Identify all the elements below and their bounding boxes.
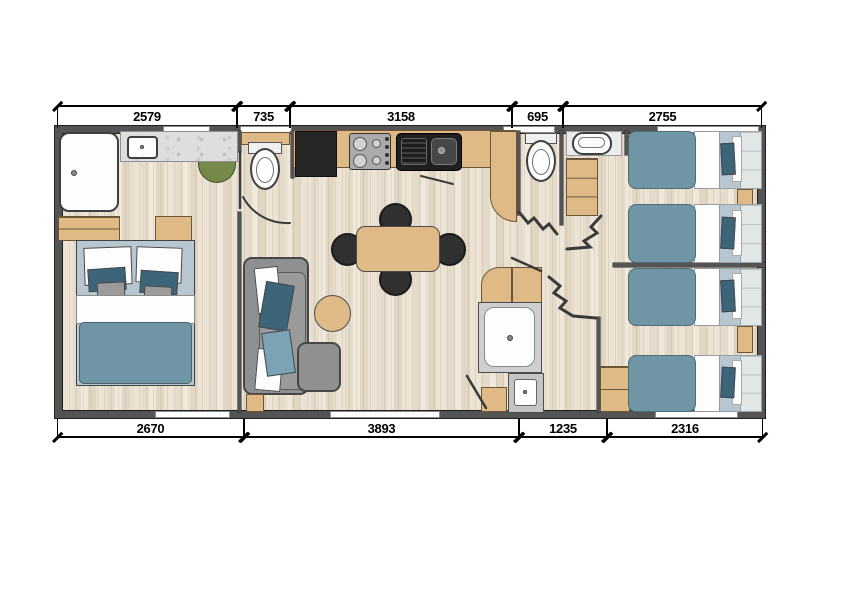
washroom-cabinet — [566, 158, 598, 216]
dim-label: 695 — [527, 109, 548, 124]
bed-duvet — [79, 322, 192, 384]
dim-top-5: 2755 — [563, 105, 762, 128]
bed-duvet — [628, 355, 696, 412]
stove-knob — [385, 145, 389, 149]
nightstand-right — [155, 216, 192, 241]
bed-sheet — [694, 131, 720, 189]
burner — [353, 154, 367, 168]
washbasin-drain — [523, 390, 527, 394]
dim-bottom-1: 2670 — [57, 419, 244, 438]
vanity-sink — [127, 136, 158, 159]
bed-nightstand — [737, 326, 753, 353]
toilet — [250, 148, 280, 190]
dim-label: 735 — [253, 109, 274, 124]
peninsula-counter — [490, 131, 517, 222]
dim-label: 3158 — [387, 109, 415, 124]
bathtub-drain — [71, 170, 77, 176]
bed-pillow-navy — [720, 280, 736, 313]
sink-faucet — [438, 147, 445, 154]
bed-duvet — [628, 131, 696, 189]
sofa-pillow-blue — [261, 329, 296, 377]
bed-duvet — [628, 204, 696, 263]
burner — [353, 137, 367, 151]
bed-pillow-navy — [720, 367, 736, 399]
basin-inner — [578, 137, 605, 148]
sink-basin — [431, 138, 457, 165]
toilet-bowl — [256, 157, 274, 183]
dim-label: 3893 — [368, 423, 396, 435]
wall-wc2-right — [560, 131, 563, 225]
shower-cabinet-bottom — [481, 387, 507, 412]
bed-headboard — [740, 204, 762, 263]
wall-bedrooms-divider — [613, 263, 765, 267]
floor-plan-page: 2579 735 3158 695 2755 2670 3893 1235 23… — [0, 0, 843, 596]
nightstand-left — [58, 216, 120, 241]
bed-pillow-navy — [720, 143, 736, 176]
dim-label: 1235 — [549, 423, 577, 435]
dim-bottom-2: 3893 — [244, 419, 519, 438]
coffee-table — [314, 295, 351, 332]
dim-label: 2316 — [671, 423, 699, 435]
dim-label: 2755 — [649, 109, 677, 124]
sofa-ottoman — [297, 342, 341, 392]
stove-knob — [385, 161, 389, 165]
bed-sheet — [76, 295, 195, 324]
shower — [478, 302, 542, 373]
dim-top-1: 2579 — [57, 105, 237, 128]
stove-knob — [385, 153, 389, 157]
bed-sheet — [694, 204, 720, 263]
bed-headboard — [740, 131, 762, 189]
toilet-bowl — [532, 149, 550, 175]
dim-bottom-3: 1235 — [519, 419, 607, 438]
cabinet-divider — [511, 268, 513, 302]
single-bed — [628, 204, 762, 263]
dining-table — [356, 226, 440, 272]
burner — [372, 139, 381, 148]
dim-top-4: 695 — [512, 105, 563, 128]
kitchen-sink — [396, 133, 462, 171]
dim-label: 2670 — [137, 423, 165, 435]
bed-headboard — [740, 355, 762, 412]
single-bed — [628, 131, 762, 189]
shower-tray — [484, 307, 535, 367]
hallway-cabinet — [600, 366, 630, 412]
washroom-basin — [572, 132, 612, 155]
sink-drain — [140, 145, 144, 149]
window — [330, 411, 440, 418]
toilet — [526, 140, 556, 182]
wall-bedroom-living — [238, 212, 241, 412]
dim-top-3: 3158 — [290, 105, 512, 128]
bathtub — [59, 132, 119, 212]
burner — [372, 156, 381, 165]
sofa-side-post — [246, 394, 264, 412]
single-bed — [628, 355, 762, 412]
bed-pillow-navy — [720, 217, 736, 250]
bed-duvet — [628, 268, 696, 326]
stove — [349, 133, 391, 170]
bed-headboard — [740, 268, 762, 326]
dim-label: 2579 — [133, 109, 161, 124]
wall-wc2-left — [517, 131, 520, 215]
dim-top-2: 735 — [237, 105, 290, 128]
washbasin — [514, 379, 537, 406]
shower-cabinet-top — [481, 267, 542, 303]
shower-drain — [507, 335, 513, 341]
window — [655, 411, 738, 418]
bed-sheet — [694, 268, 720, 326]
dim-bottom-4: 2316 — [607, 419, 763, 438]
sink-drainboard — [401, 138, 427, 165]
washbasin-unit — [508, 373, 544, 413]
fridge — [295, 131, 337, 177]
bed-sheet — [694, 355, 720, 412]
window — [155, 411, 230, 418]
stove-knob — [385, 137, 389, 141]
single-bed — [628, 268, 762, 326]
